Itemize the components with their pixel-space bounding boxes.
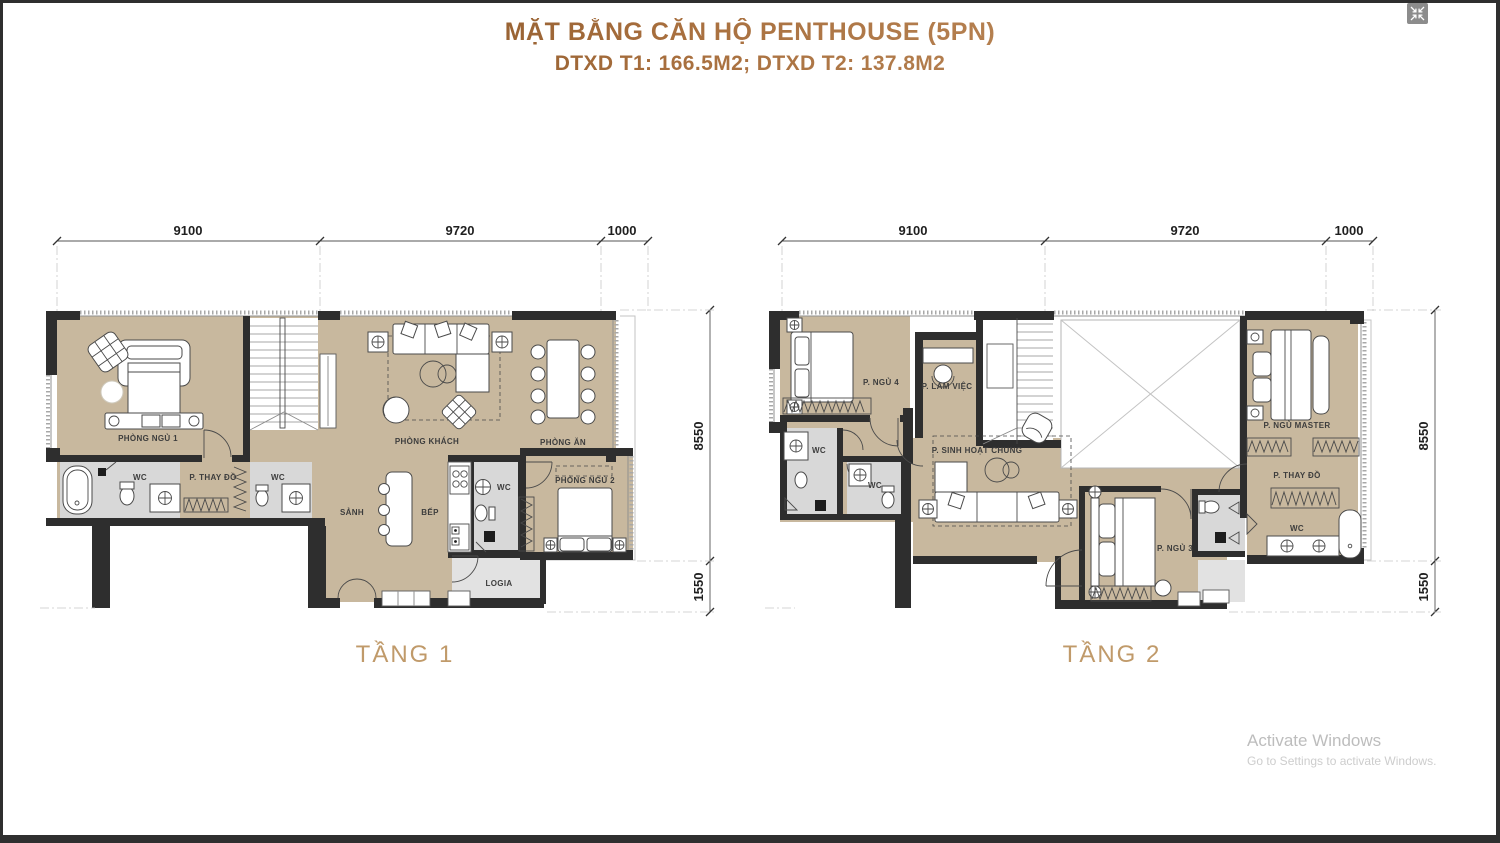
floor1-label-bedroom1: PHÒNG NGỦ 1 xyxy=(118,434,178,443)
page-title: MẶT BẰNG CĂN HỘ PENTHOUSE (5PN) xyxy=(0,18,1500,47)
watermark-subtitle: Go to Settings to activate Windows. xyxy=(1247,754,1436,768)
floor1-dim-9720: 9720 xyxy=(446,223,475,238)
floor2-label-office: P. LÀM VIỆC xyxy=(922,382,973,391)
floor2-label-wc-c: WC xyxy=(1290,524,1304,533)
page-subtitle: DTXD T1: 166.5M2; DTXD T2: 137.8M2 xyxy=(0,52,1500,76)
floor1-dim-8550: 8550 xyxy=(691,422,706,451)
floor2-dim-9100: 9100 xyxy=(899,223,928,238)
screen-edge-right xyxy=(1496,0,1500,843)
plan-header: MẶT BẰNG CĂN HỘ PENTHOUSE (5PN) DTXD T1:… xyxy=(0,18,1500,76)
floor2-label-dressing: P. THAY ĐỒ xyxy=(1273,470,1320,480)
exit-fullscreen-button[interactable] xyxy=(1407,3,1428,24)
activate-windows-watermark: Activate Windows Go to Settings to activ… xyxy=(1247,731,1436,768)
floor2-label-bedroom3: P. NGỦ 3 xyxy=(1157,544,1193,553)
floor2-dim-1000: 1000 xyxy=(1335,223,1364,238)
floor1-side-table xyxy=(101,381,123,403)
floor1-label-wc-a: WC xyxy=(133,473,147,482)
screenshot-root: MẶT BẰNG CĂN HỘ PENTHOUSE (5PN) DTXD T1:… xyxy=(0,0,1500,843)
floor1-bathtub xyxy=(63,466,92,514)
floor1-label-kitchen: BẾP xyxy=(421,507,439,517)
floor1-label-hall: SẢNH xyxy=(340,508,364,517)
floor2-label-wc-b: WC xyxy=(868,481,882,490)
floor2-title: TẦNG 2 xyxy=(1002,641,1222,669)
floor1-title: TẦNG 1 xyxy=(295,641,515,669)
floor2-dim-8550: 8550 xyxy=(1416,422,1431,451)
floor1-dim-1550: 1550 xyxy=(691,573,706,602)
floor1-dim-1000: 1000 xyxy=(608,223,637,238)
watermark-title: Activate Windows xyxy=(1247,731,1436,751)
floor1-label-wc-b: WC xyxy=(271,473,285,482)
floor1-plan: 9100 9720 1000 8550 1550 PHÒNG NGỦ 1 WC … xyxy=(30,205,730,635)
floor2-dim-9720: 9720 xyxy=(1171,223,1200,238)
floor2-label-master: P. NGỦ MASTER xyxy=(1263,421,1330,430)
floor1-label-logia: LOGIA xyxy=(485,579,512,588)
floor1-label-dressing: P. THAY ĐỒ xyxy=(189,472,236,482)
floor2-plan: 9100 9720 1000 8550 1550 P. NGỦ 4 P. LÀM… xyxy=(750,205,1460,635)
exit-fullscreen-icon xyxy=(1409,5,1426,22)
floor1-label-bedroom2: PHÒNG NGỦ 2 xyxy=(555,476,615,485)
floor2-void xyxy=(1061,320,1240,468)
floor1-label-living: PHÒNG KHÁCH xyxy=(395,437,459,446)
floor2-label-common: P. SINH HOẠT CHUNG xyxy=(932,446,1023,455)
floor1-dim-9100: 9100 xyxy=(174,223,203,238)
screen-edge-left xyxy=(0,0,3,843)
screen-edge-bottom xyxy=(0,835,1500,843)
floor2-label-bedroom4: P. NGỦ 4 xyxy=(863,378,899,387)
floor2-dim-1550: 1550 xyxy=(1416,573,1431,602)
screen-edge-top xyxy=(0,0,1500,3)
floor2-label-wc-a: WC xyxy=(812,446,826,455)
floor1-label-dining: PHÒNG ĂN xyxy=(540,438,586,447)
floor1-label-wc-c: WC xyxy=(497,483,511,492)
